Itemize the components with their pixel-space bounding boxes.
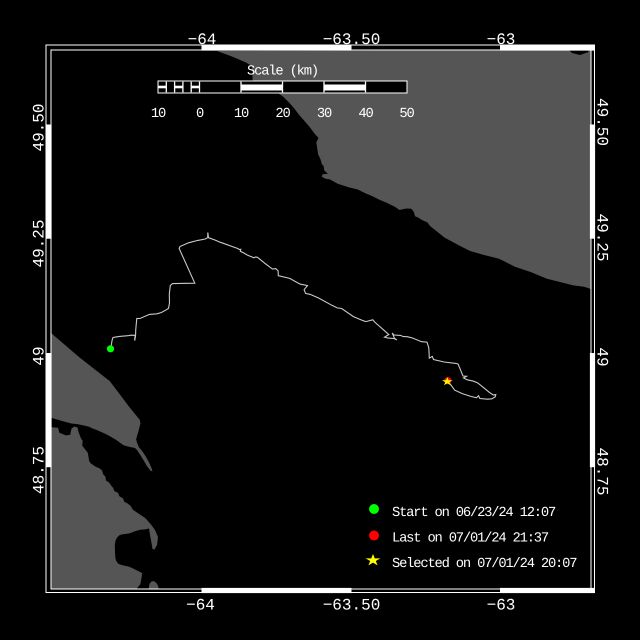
svg-text:Last on 07/01/24 21:37: Last on 07/01/24 21:37 bbox=[392, 532, 549, 547]
svg-text:20: 20 bbox=[275, 107, 290, 122]
svg-text:−64: −64 bbox=[188, 31, 217, 49]
svg-text:−63: −63 bbox=[487, 31, 516, 49]
svg-text:40: 40 bbox=[358, 107, 373, 122]
svg-text:49: 49 bbox=[31, 346, 49, 365]
svg-text:49.25: 49.25 bbox=[31, 219, 49, 267]
svg-text:Scale (km): Scale (km) bbox=[247, 65, 318, 80]
svg-text:49: 49 bbox=[593, 347, 611, 366]
svg-text:−63: −63 bbox=[487, 597, 516, 615]
svg-text:50: 50 bbox=[399, 107, 414, 122]
svg-text:49.50: 49.50 bbox=[31, 103, 49, 151]
svg-text:48.75: 48.75 bbox=[31, 446, 49, 494]
svg-text:49.25: 49.25 bbox=[593, 213, 611, 261]
svg-text:0: 0 bbox=[196, 107, 204, 122]
svg-text:Selected on 07/01/24 20:07: Selected on 07/01/24 20:07 bbox=[392, 557, 577, 572]
svg-text:Start on 06/23/24 12:07: Start on 06/23/24 12:07 bbox=[392, 506, 556, 521]
svg-text:10: 10 bbox=[234, 107, 249, 122]
svg-text:10: 10 bbox=[151, 107, 166, 122]
svg-text:49.50: 49.50 bbox=[593, 98, 611, 146]
svg-text:−64: −64 bbox=[186, 597, 215, 615]
svg-text:48.75: 48.75 bbox=[593, 447, 611, 495]
svg-text:30: 30 bbox=[317, 107, 332, 122]
svg-text:−63.50: −63.50 bbox=[323, 31, 381, 49]
svg-text:−63.50: −63.50 bbox=[323, 597, 381, 615]
